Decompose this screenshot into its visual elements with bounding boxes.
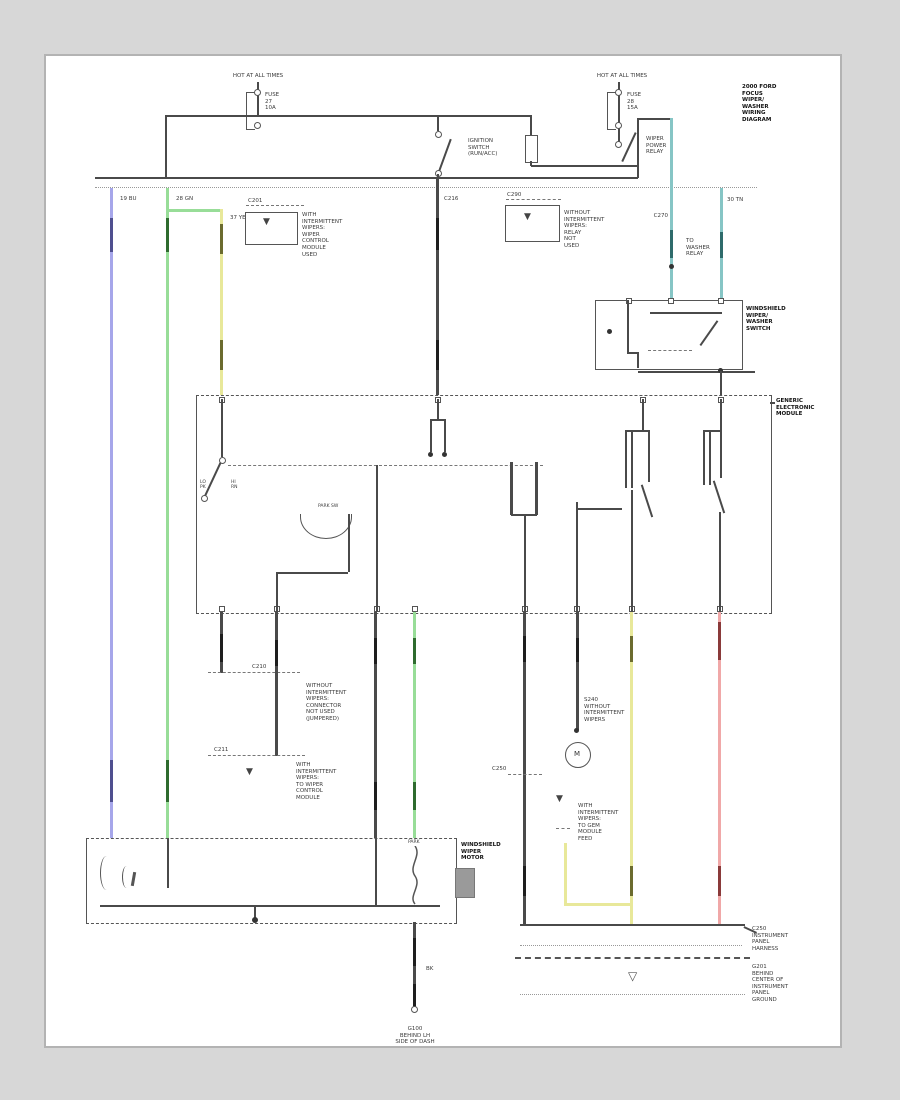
- hot-at-all-times-right-label: HOT AT ALL TIMES: [574, 73, 670, 80]
- note-with-int: WITH INTERMITTENT WIPERS: TO WIPER CONTR…: [296, 762, 344, 802]
- wire-green-lower-sleeve-1: [413, 638, 416, 664]
- ignition-switch-contact-top: [435, 131, 442, 138]
- fuse-left-label: FUSE 27 10A: [265, 92, 305, 112]
- note-box-2-connector: C290: [507, 192, 537, 199]
- wire-blue: [110, 188, 113, 838]
- gem-relay1-contact: [648, 430, 650, 482]
- switch-inner-wire-1: [627, 300, 629, 352]
- wire-b-sleeve: [275, 640, 278, 666]
- fuse-right-label: FUSE 28 15A: [627, 92, 667, 112]
- wire-black-code: C216: [444, 196, 470, 203]
- wire-green-sleeve-top: [166, 218, 169, 252]
- switch-pin-2: [668, 298, 674, 304]
- gem-relay1-coil-b: [631, 430, 633, 488]
- motor-inner-bus: [100, 905, 440, 907]
- gem-relay2-out: [719, 512, 721, 612]
- strip-line-4: [520, 994, 745, 995]
- wire-c-sleeve-2: [374, 782, 377, 810]
- motor-inner-wire-2: [375, 838, 377, 905]
- relay-contact: [615, 141, 622, 148]
- wire-yellow-sleeve-2: [220, 340, 223, 370]
- gem-contact-stub: [437, 399, 439, 419]
- diagram-title-block: 2000 FORD FOCUS WIPER/ WASHER WIRING DIA…: [742, 84, 796, 124]
- note-box-2-leader: [506, 199, 561, 200]
- note-box-1-leader: [246, 205, 304, 206]
- junction-box-dotted-bus: [95, 187, 757, 188]
- splice-triangle-icon-2: ▼: [556, 795, 563, 804]
- small-connector-mark: [556, 828, 570, 829]
- wire-blue-sleeve-top: [110, 218, 113, 252]
- note-box-1-triangle-icon: ▼: [263, 218, 270, 227]
- wire-yellow-lower-sleeve-1: [630, 636, 633, 662]
- wire-blue-sleeve-bottom: [110, 760, 113, 802]
- note-no-int: WITHOUT INTERMITTENT WIPERS: CONNECTOR N…: [306, 683, 354, 723]
- note-box-2-triangle-icon: ▼: [524, 213, 531, 222]
- strip-line-1: [520, 924, 745, 926]
- note-s240: S240 WITHOUT INTERMITTENT WIPERS: [584, 697, 632, 723]
- wire-577-below: [576, 612, 579, 730]
- ignition-switch-feed: [437, 115, 439, 131]
- gem-relay2-coil-a: [703, 430, 705, 485]
- bus-right-drop: [530, 115, 532, 135]
- switch-inner-dashed: [648, 350, 692, 351]
- strip-line-3: [515, 957, 750, 959]
- hot-at-all-times-left-label: HOT AT ALL TIMES: [210, 73, 306, 80]
- wire-c-sleeve-1: [374, 638, 377, 664]
- inline-connector-2-label: C211: [214, 747, 242, 754]
- inline-connector-3-label: C250: [492, 766, 520, 773]
- wire-black-sleeve-2: [436, 340, 439, 370]
- relay-top-branch: [638, 118, 672, 120]
- note-box-1-text: WITH INTERMITTENT WIPERS: WIPER CONTROL …: [302, 212, 348, 258]
- strip-line-2: [520, 945, 742, 946]
- inline-connector-1: [208, 672, 300, 673]
- wire-green-code: 28 GN: [176, 196, 202, 203]
- gem-switch-contact-b: [201, 495, 208, 502]
- teal-junction-dot: [669, 264, 674, 269]
- gem-cam-out: [276, 572, 278, 612]
- switch-bottom-line: [638, 371, 755, 373]
- motor-junction-dot: [252, 917, 258, 923]
- gem-contact-dot-2: [442, 452, 447, 457]
- wire-green-lower-sleeve-2: [413, 782, 416, 810]
- teal-2-code: 30 TN: [727, 197, 753, 204]
- strip-c250-label: C250 INSTRUMENT PANEL HARNESS: [752, 926, 800, 952]
- wire-green: [166, 188, 169, 838]
- ground-wire-code: BK: [426, 966, 446, 973]
- gem-module-box: [196, 395, 772, 614]
- motor-ground-sleeve-2: [413, 984, 416, 1006]
- note-box-2-text: WITHOUT INTERMITTENT WIPERS: RELAY NOT U…: [564, 210, 610, 250]
- yellow-branch-v: [564, 843, 567, 905]
- inline-connector-2: [208, 755, 305, 756]
- wiper-motor-box: [86, 838, 457, 924]
- bus-a-right-branch: [531, 165, 638, 167]
- switch-to-gem-stub: [720, 371, 722, 395]
- note-box-1: [245, 212, 298, 245]
- gem-relay1-top: [626, 430, 649, 432]
- gem-relay2-coil-b: [709, 430, 711, 485]
- gem-relay2-contact: [720, 430, 722, 478]
- gem-relay1-out: [631, 490, 633, 612]
- gem-contact-leg-1: [430, 419, 432, 452]
- wire-black-sleeve-1: [436, 218, 439, 250]
- gem-relay2-top: [704, 430, 721, 432]
- motor-ground-sleeve-1: [413, 938, 416, 966]
- gem-label-tick: [770, 402, 775, 404]
- g100-label: G100 BEHIND LH SIDE OF DASH: [385, 1026, 445, 1046]
- wire-577-sleeve: [576, 638, 579, 662]
- gem-module-label: GENERIC ELECTRONIC MODULE: [776, 398, 830, 418]
- feed-wire-left: [257, 82, 259, 116]
- ground-triangle-icon: ▽: [628, 970, 637, 982]
- motor-brush-arc-1: [100, 856, 113, 890]
- switch-inner-bus: [650, 312, 722, 314]
- wire-a-sleeve: [220, 634, 223, 662]
- relay-drop: [637, 118, 639, 178]
- gem-pin-text-left: LO PK: [200, 480, 218, 491]
- gem-wire-577: [576, 502, 578, 612]
- wire-b-below: [275, 612, 278, 756]
- gem-relay1-coil-a: [625, 430, 627, 488]
- note-gem-feed: WITH INTERMITTENT WIPERS: TO GEM MODULE …: [578, 803, 626, 843]
- gem-cam-jog: [276, 572, 348, 574]
- fuse-right-terminal-bottom: [615, 122, 622, 129]
- switch-pin-3: [718, 298, 724, 304]
- gem-bar-contact-1: [510, 462, 513, 515]
- gem-branch-508: [576, 508, 622, 510]
- gem-relay2-feed: [720, 399, 722, 430]
- wire-525-sleeve-2: [523, 866, 526, 896]
- fuse-right-terminal-top: [615, 89, 622, 96]
- wiper-washer-switch-label: WINDSHIELD WIPER/ WASHER SWITCH: [746, 306, 802, 332]
- motor-park-switch-squiggle: [408, 846, 422, 906]
- splice-triangle-icon-1: ▼: [246, 768, 253, 777]
- g201-label: G201 BEHIND CENTER OF INSTRUMENT PANEL G…: [752, 964, 800, 1004]
- gem-wire-376: [376, 465, 378, 612]
- wiper-motor-label: WINDSHIELD WIPER MOTOR: [461, 842, 511, 862]
- washer-pump-m: M: [565, 750, 589, 758]
- ignition-switch-label: IGNITION SWITCH (RUN/ACC): [468, 138, 526, 158]
- wiring-diagram-scan: HOT AT ALL TIMES FUSE 27 10A IGNITION SW…: [0, 0, 900, 1100]
- wire-teal-1-sleeve: [670, 230, 673, 258]
- wire-green-sleeve-bottom: [166, 760, 169, 802]
- bus-left-drop: [165, 115, 167, 178]
- wiper-washer-switch-box: [595, 300, 743, 370]
- wire-blue-code: 19 BU: [120, 196, 146, 203]
- wire-577-dot: [574, 728, 579, 733]
- switch-inner-dot: [607, 329, 612, 334]
- gem-internal-dashed: [228, 465, 543, 466]
- gem-bar-contact-2: [535, 462, 538, 515]
- fuse-left-terminal-bottom: [254, 122, 261, 129]
- bus-b: [95, 177, 638, 179]
- gem-contact-leg-2: [444, 419, 446, 452]
- yellow-branch-h: [564, 903, 633, 906]
- gem-park-label: PARK SW: [318, 504, 358, 509]
- green-elbow: [168, 209, 221, 212]
- motor-inner-wire-1: [167, 838, 169, 888]
- switch-inner-wire-2: [637, 352, 639, 368]
- note-box-2: [505, 205, 560, 242]
- gem-pin-text-right: HI RN: [231, 480, 249, 491]
- fuse-left-terminal-top: [254, 89, 261, 96]
- teal-1-code: C270: [646, 213, 668, 220]
- wire-yellow-lower-sleeve-2: [630, 866, 633, 896]
- motor-brush-arc-2: [122, 866, 131, 888]
- wire-525-sleeve-1: [523, 636, 526, 662]
- ground-terminal: [411, 1006, 418, 1013]
- wire-red-sleeve-1: [718, 622, 721, 660]
- gem-yellow-in-lead: [221, 399, 223, 457]
- motor-park-label: PARK: [408, 840, 438, 845]
- gem-contact-dot-1: [428, 452, 433, 457]
- gem-cam-lead: [348, 514, 350, 572]
- note-box-1-connector: C201: [248, 198, 278, 205]
- gem-bar-out: [524, 515, 526, 612]
- inline-component: [525, 135, 538, 163]
- wire-teal-1: [670, 118, 673, 302]
- gem-contact-bridge: [430, 419, 445, 421]
- inline-connector-3: [508, 774, 542, 775]
- wire-red-sleeve-2: [718, 866, 721, 896]
- bus-a: [165, 115, 532, 117]
- gem-relay1-feed: [642, 399, 644, 430]
- motor-connector-tag: [455, 868, 475, 898]
- wire-teal-2-sleeve: [720, 232, 723, 258]
- wire-yellow-sleeve-1: [220, 224, 223, 254]
